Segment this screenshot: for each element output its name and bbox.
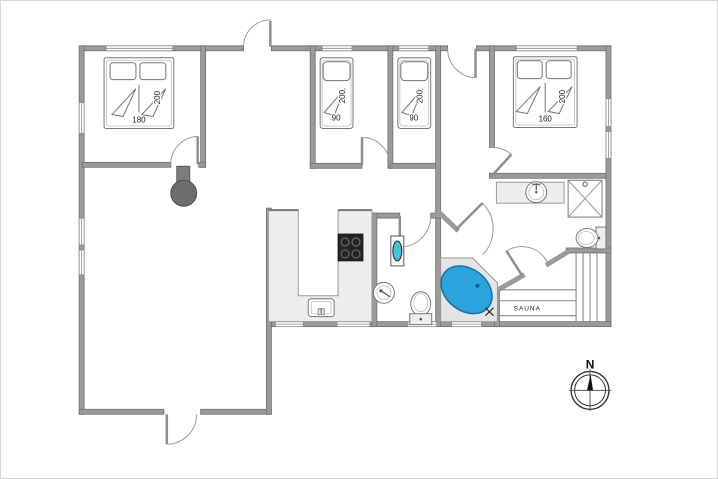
shower — [568, 180, 602, 217]
north-needle — [587, 374, 593, 390]
window — [79, 103, 84, 134]
pillow — [546, 61, 571, 79]
shower-head — [583, 182, 587, 186]
bath-vanity — [496, 182, 564, 203]
boiler — [391, 236, 404, 266]
bed-width-label: 90 — [409, 113, 418, 122]
window — [606, 131, 611, 158]
window — [337, 322, 370, 327]
bedroom-1-bed: 180 200 — [104, 58, 174, 129]
window — [606, 99, 611, 127]
pillow — [323, 62, 350, 81]
stove-body — [171, 180, 197, 206]
window — [452, 322, 482, 327]
pillow — [140, 63, 166, 80]
entry-door-hall-north — [243, 20, 270, 47]
bedroom-3-bed: 90 200 — [398, 58, 431, 129]
kitchen — [268, 210, 372, 322]
pillow — [110, 63, 136, 80]
window — [79, 250, 84, 275]
bed-width-label: 90 — [332, 113, 341, 122]
wc-door — [400, 216, 431, 247]
window — [275, 322, 303, 327]
sauna-diagonal-wall-1 — [496, 276, 522, 291]
wc-basin — [373, 282, 394, 303]
wc-room — [373, 236, 431, 325]
entry-door-corridor-north — [448, 49, 476, 78]
bed-length-label: 200 — [153, 90, 162, 104]
bath-toilet — [576, 227, 606, 249]
entry-door-living-south — [167, 414, 197, 444]
boiler-window — [393, 241, 402, 261]
sauna-diagonal-wall-2 — [548, 253, 566, 264]
bed-width-label: 160 — [539, 114, 553, 123]
floor-plan-canvas: 180 200 90 200 90 200 160 200 — [0, 0, 718, 479]
bedroom-2-door — [362, 137, 390, 165]
bedroom-4-bed: 160 200 — [513, 57, 577, 128]
pillow — [517, 61, 542, 79]
wc-toilet — [410, 292, 432, 325]
sauna-door — [506, 247, 548, 276]
bed-length-label: 200 — [338, 89, 347, 103]
kitchen-sink — [308, 299, 334, 317]
corner-bathtub — [432, 256, 502, 323]
compass-rose: N — [569, 357, 611, 411]
window — [322, 46, 352, 51]
wood-stove — [171, 166, 197, 206]
window — [79, 218, 84, 245]
bedroom-4-door — [492, 147, 511, 175]
window — [399, 46, 429, 51]
north-label: N — [586, 357, 595, 371]
pillow — [401, 62, 428, 81]
bed-length-label: 200 — [416, 89, 425, 103]
bed-length-label: 200 — [558, 89, 567, 103]
drain — [476, 284, 480, 288]
window — [106, 46, 173, 51]
window — [516, 46, 577, 51]
bedroom-2-bed: 90 200 — [320, 58, 353, 129]
floor-plan: 180 200 90 200 90 200 160 200 — [1, 1, 717, 478]
sauna-label: SAUNA — [514, 306, 541, 313]
bedroom-1-door — [171, 136, 198, 164]
bed-width-label: 180 — [132, 115, 146, 124]
bathroom-door — [457, 203, 494, 255]
